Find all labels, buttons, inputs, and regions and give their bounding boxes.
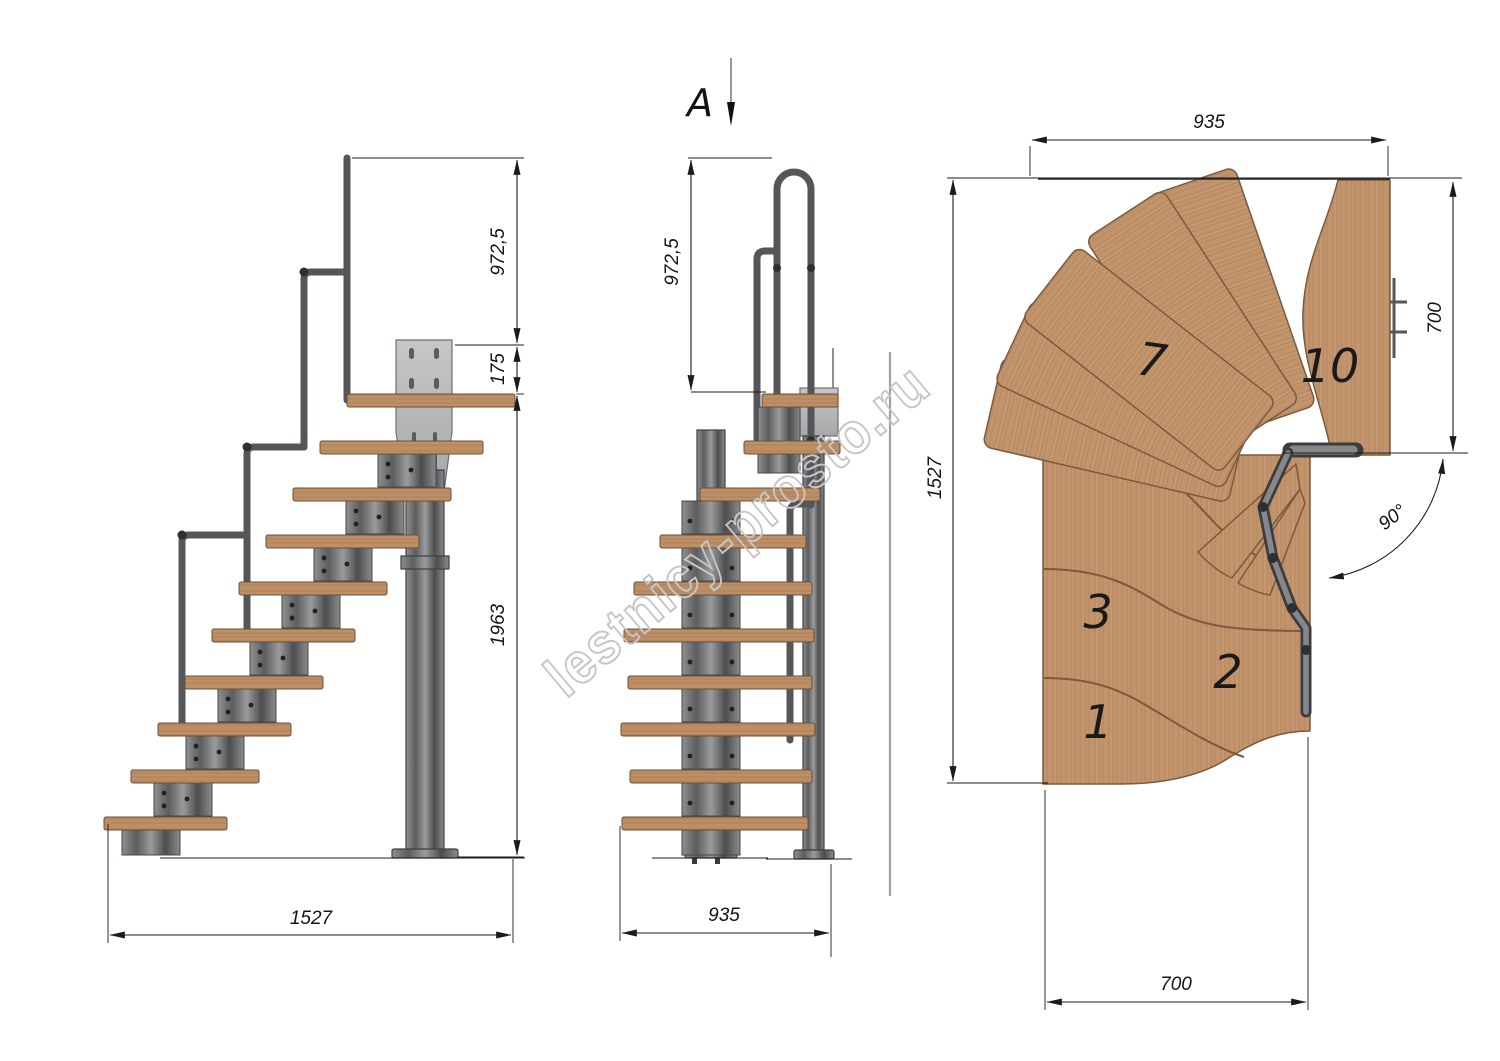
step-module — [186, 736, 244, 769]
step-module — [218, 689, 276, 722]
anchor-bolt — [692, 858, 697, 864]
dim-label-plan-700-right: 700 — [1425, 302, 1446, 334]
technical-drawing: 972,5 175 1963 1527 A — [0, 0, 1500, 1061]
tread-number-10: 10 — [1301, 339, 1360, 393]
tread-number-2: 2 — [1213, 645, 1242, 699]
step-module — [682, 783, 740, 816]
dim-label-side-1963: 1963 — [488, 603, 509, 646]
dim-label-plan-1527: 1527 — [925, 455, 946, 499]
tread — [131, 770, 259, 783]
tread — [158, 723, 291, 736]
drawing-canvas: 972,5 175 1963 1527 A — [0, 0, 1500, 1061]
anchor-bolt — [715, 858, 720, 864]
step-module — [282, 595, 340, 628]
rail-post-base-flange — [794, 850, 834, 859]
step-module — [682, 689, 740, 722]
side-view-elevation: 972,5 175 1963 1527 — [104, 158, 525, 943]
step-module — [314, 548, 372, 581]
dim-label-side-1527: 1527 — [290, 908, 334, 929]
side-support-column — [406, 470, 444, 855]
dim-label-plan-700-bottom: 700 — [1160, 974, 1192, 995]
step-module — [682, 736, 740, 769]
dim-label-plan-935: 935 — [1193, 112, 1225, 133]
dim-label-front-972: 972,5 — [662, 238, 683, 286]
tread — [212, 629, 355, 642]
section-marker: A — [684, 58, 735, 126]
tread — [239, 582, 387, 595]
side-column-base-flange — [392, 849, 458, 858]
tread — [762, 394, 838, 407]
tread — [622, 817, 808, 830]
tread — [104, 817, 227, 830]
step-module — [250, 642, 308, 675]
side-step-modules — [122, 454, 436, 855]
dim-label-side-175: 175 — [488, 353, 509, 385]
tread — [630, 770, 812, 783]
step-module — [378, 454, 436, 487]
section-arrow-head — [727, 102, 735, 126]
tread — [347, 394, 515, 407]
step-module — [682, 830, 740, 855]
step-module — [346, 501, 404, 534]
plan-view: 3 2 1 7 10 935 — [925, 112, 1468, 1010]
tread — [293, 488, 451, 501]
tread — [628, 676, 812, 689]
dim-label-side-972: 972,5 — [488, 228, 509, 276]
step-module — [154, 783, 212, 816]
section-label-a: A — [684, 81, 713, 125]
tread — [320, 441, 483, 454]
side-column-collar — [401, 556, 449, 569]
tread — [621, 723, 815, 736]
dim-label-front-935: 935 — [708, 905, 740, 926]
angle-label-90: 90° — [1375, 500, 1411, 534]
landing-tread-10 — [1303, 180, 1390, 455]
tread-number-3: 3 — [1083, 585, 1112, 639]
wall-bracket — [1390, 278, 1407, 358]
tread-number-1: 1 — [1083, 695, 1112, 749]
step-module — [682, 642, 740, 675]
tread — [185, 676, 323, 689]
step-module — [122, 830, 180, 855]
tread — [266, 535, 419, 548]
